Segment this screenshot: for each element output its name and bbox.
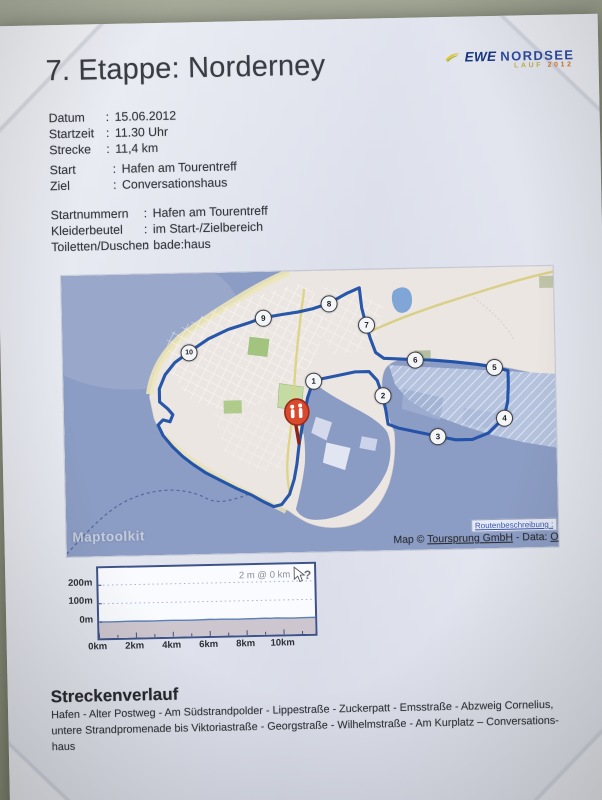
elevation-area-fill [99, 617, 315, 638]
map-park [539, 276, 557, 288]
map-watermark: Maptoolkit [72, 528, 145, 545]
x-tick-0km: 0km [81, 641, 115, 653]
detail-row-datum: Datum : 15.06.2012 [48, 109, 93, 126]
page-title: 7. Etappe: Norderney [45, 49, 325, 88]
cursor-icon: ? [294, 567, 311, 582]
elevation-chart: 200m 100m 0m 2 m @ 0 km ? 0 [0, 14, 598, 27]
logistics-block: Startnummern : Hafen am Tourentreff Klei… [50, 205, 149, 255]
map-park [224, 400, 242, 413]
course-heading: Streckenverlauf [51, 685, 179, 708]
x-tick-8km: 8km [229, 638, 263, 650]
x-tick-2km: 2km [118, 640, 152, 652]
route-map: 12345678910 Maptoolkit Routenbeschreibun… [61, 266, 559, 557]
svg-text:?: ? [304, 568, 312, 582]
y-tick-100m: 100m [60, 595, 93, 607]
x-tick-6km: 6km [192, 639, 226, 651]
y-tick-200m: 200m [59, 577, 92, 589]
photo-of-sheet: 7. Etappe: Norderney EWE NORDSEE LAUF 20… [0, 0, 602, 800]
paper-crease-top-right [448, 14, 600, 137]
paper-sheet: 7. Etappe: Norderney EWE NORDSEE LAUF 20… [0, 14, 602, 800]
course-text-line-3: haus [52, 741, 76, 753]
event-logo: EWE NORDSEE LAUF 2012 [444, 46, 574, 71]
elevation-plot-area: 2 m @ 0 km ? [96, 562, 318, 641]
detail-row-startzeit: Startzeit : 11.30 Uhr [49, 125, 94, 142]
map-park [247, 337, 269, 357]
x-tick-10km: 10km [266, 637, 300, 649]
map-graphic [61, 266, 559, 557]
credit-link-data: O [550, 531, 558, 543]
y-tick-0m: 0m [60, 614, 93, 626]
row-toiletten: Toiletten/Duschen : bade:haus [51, 237, 149, 255]
start-ziel-block: Start : Hafen am Tourentreff Ziel : Conv… [50, 162, 77, 195]
detail-row-strecke: Strecke : 11,4 km [49, 141, 94, 158]
logo-swoosh-icon [444, 49, 461, 65]
logo-brand-text: EWE [465, 48, 497, 64]
elevation-tooltip: 2 m @ 0 km [239, 569, 291, 581]
credit-link-toursprung: Toursprung GmbH [427, 532, 513, 546]
row-start: Start : Hafen am Tourentreff [50, 162, 76, 179]
row-ziel: Ziel : Conversationshaus [50, 178, 76, 195]
stage-details-block: Datum : 15.06.2012 Startzeit : 11.30 Uhr… [48, 109, 94, 158]
x-tick-4km: 4km [155, 639, 189, 651]
